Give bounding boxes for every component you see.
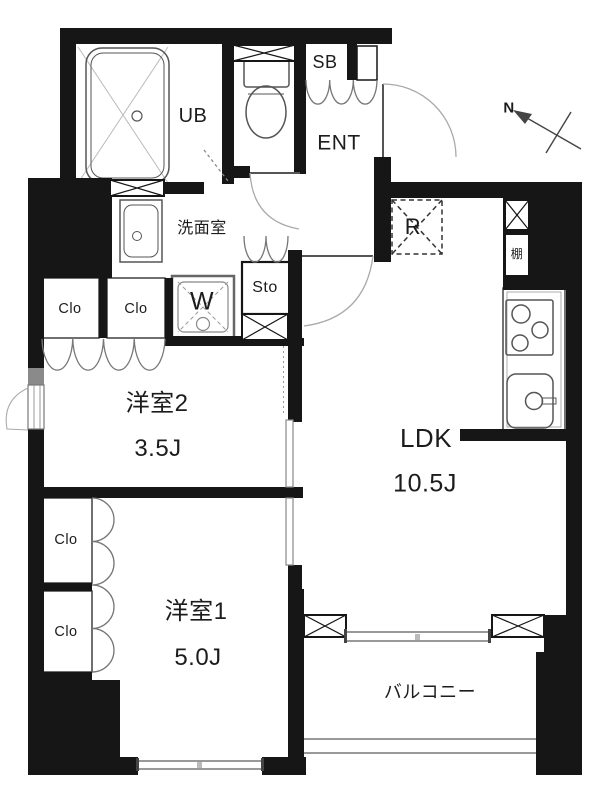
label-washing-machine: W <box>190 290 214 315</box>
hatch-box <box>505 200 529 230</box>
label-ldk-area: 10.5J <box>393 472 457 497</box>
label-bedroom1: 洋室1 <box>165 600 228 624</box>
toilet-icon <box>244 60 289 138</box>
wall-segment <box>294 44 306 174</box>
hatch-box <box>304 615 346 637</box>
wall-segment <box>347 44 357 80</box>
shoe-box-doors <box>306 80 377 104</box>
wall-segment <box>28 487 285 498</box>
wall-segment <box>460 429 566 441</box>
wall-segment <box>288 565 302 591</box>
wall-segment <box>536 652 582 775</box>
wall-segment <box>42 583 92 591</box>
wall-segment <box>288 589 304 775</box>
wall-segment <box>566 198 582 652</box>
bathtub-icon <box>86 48 169 183</box>
wall-segment <box>60 28 76 200</box>
closet-lower-doors <box>92 498 114 672</box>
label-washroom: 洗面室 <box>177 221 227 237</box>
label-refrigerator: R <box>405 216 421 238</box>
entrance-door-swing <box>383 84 456 157</box>
wall-segment <box>234 166 250 178</box>
label-shelf: 棚 <box>511 248 524 260</box>
hatch-box <box>233 45 295 61</box>
wall-segment <box>28 368 44 385</box>
hatch-box <box>492 615 544 637</box>
label-unit-bath: UB <box>179 106 208 126</box>
stove-icon <box>506 300 553 355</box>
vanity-sink-icon <box>120 200 162 262</box>
floor-plan: UB SB ENT 洗面室 W Sto Clo Clo 洋室2 3.5J Clo… <box>0 0 600 800</box>
sliding-window <box>136 758 264 771</box>
storage-doors <box>244 236 288 262</box>
label-bedroom1-area: 5.0J <box>174 646 221 670</box>
closet-mid-doors <box>42 339 165 370</box>
label-ldk: LDK <box>400 425 452 451</box>
label-shoe-box: SB <box>312 53 337 71</box>
kitchen-sink-icon <box>507 374 556 428</box>
wall-segment <box>374 157 391 262</box>
wall-segment <box>544 615 566 655</box>
label-balcony: バルコニー <box>384 683 476 701</box>
wall-segment <box>28 757 138 775</box>
floor-plan-drawing <box>0 0 600 800</box>
hatch-box <box>242 314 288 340</box>
casement-window <box>6 385 44 430</box>
wall-segment <box>222 44 234 184</box>
wall-segment <box>283 487 303 498</box>
north-compass-icon <box>513 110 581 153</box>
ldk-door-swing <box>302 256 373 326</box>
label-bedroom2: 洋室2 <box>126 392 189 416</box>
wall-segment <box>165 278 173 336</box>
label-closet-mid-left: Clo <box>58 302 81 317</box>
wall-segment <box>288 250 302 422</box>
hatch-box <box>110 180 164 196</box>
label-closet-lower-1: Clo <box>54 533 77 548</box>
label-storage: Sto <box>252 280 278 296</box>
label-closet-mid-right: Clo <box>124 302 147 317</box>
wall-segment <box>165 336 245 346</box>
wall-niche-box <box>357 46 377 80</box>
sliding-window <box>344 629 491 643</box>
wall-segment <box>60 28 392 44</box>
label-entrance: ENT <box>317 133 361 154</box>
wall-segment <box>99 278 107 338</box>
label-north: N <box>503 101 514 116</box>
balcony-railing <box>304 739 536 753</box>
wall-segment <box>42 672 92 682</box>
label-closet-lower-2: Clo <box>54 625 77 640</box>
toilet-door-swing <box>250 173 300 229</box>
walls <box>28 28 582 775</box>
wall-segment <box>374 182 582 198</box>
label-bedroom2-area: 3.5J <box>134 437 181 461</box>
